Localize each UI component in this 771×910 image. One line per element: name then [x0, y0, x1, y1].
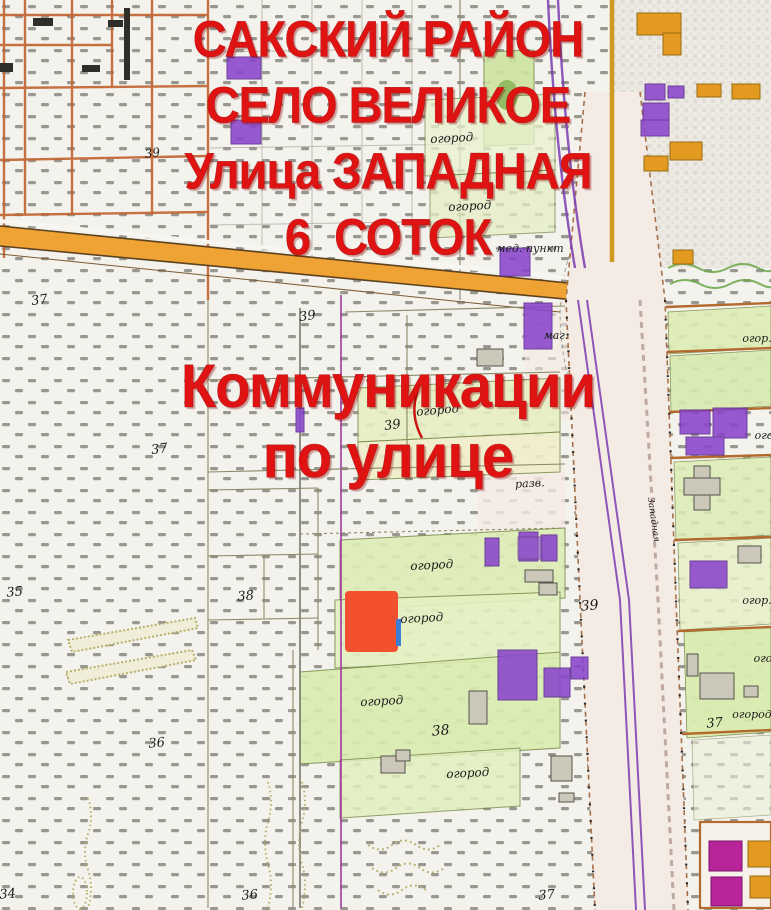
utilities-overlay: Коммуникации по улице — [96, 352, 680, 492]
map-label: 37 — [30, 292, 49, 309]
map-label: 39 — [580, 597, 599, 614]
overlay-line-street: Улица ЗАПАДНАЯ — [96, 135, 680, 206]
map-label: 38 — [237, 588, 255, 604]
plot-marker — [345, 591, 398, 652]
map-label: маг. — [544, 329, 569, 342]
map-label: 34 — [0, 886, 17, 902]
listing-photo: огородогородмед. пунктмаг.3937393739огор… — [0, 0, 771, 910]
overlay-line-village: СЕЛО ВЕЛИКОЕ — [96, 69, 680, 140]
map-label: 37 — [706, 715, 725, 731]
map-label: огород — [410, 557, 454, 573]
map-label: ого — [754, 652, 771, 665]
map-label: огор. — [742, 594, 771, 607]
map-label: 35 — [6, 584, 24, 600]
overlay-line-district: САКСКИЙ РАЙОН — [96, 3, 680, 74]
map-label: 38 — [431, 722, 450, 739]
map-label: огород — [400, 610, 444, 626]
title-overlay: САКСКИЙ РАЙОН СЕЛО ВЕЛИКОЕ Улица ЗАПАДНА… — [96, 6, 680, 270]
map-label: 37 — [538, 887, 557, 903]
overlay-line-area: 6 СОТОК — [96, 201, 680, 272]
map-label: ого — [755, 429, 771, 442]
overlay-line-utilities-1: Коммуникации — [96, 350, 680, 424]
map-label: 36 — [148, 735, 166, 751]
map-label: огород — [360, 693, 404, 709]
plot-marker-group — [345, 591, 401, 652]
map-label: 39 — [298, 308, 316, 325]
map-label: огор. — [742, 332, 771, 345]
map-label: огород — [446, 765, 490, 781]
overlay-line-utilities-2: по улице — [96, 420, 680, 494]
map-label: огород — [732, 708, 771, 721]
map-label: 36 — [241, 887, 259, 903]
